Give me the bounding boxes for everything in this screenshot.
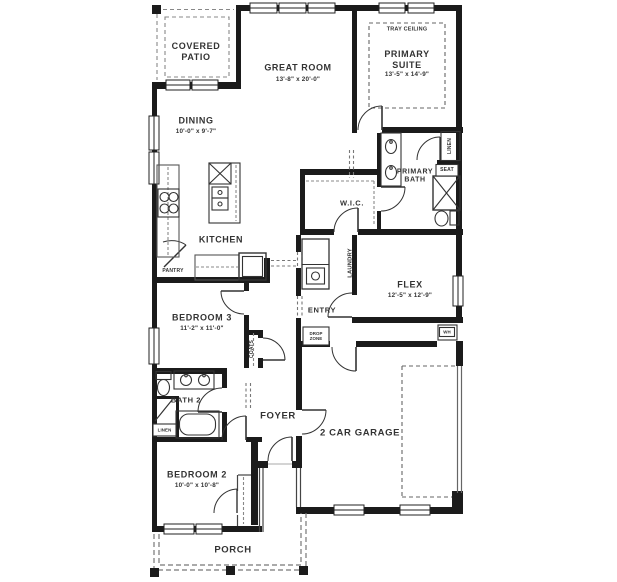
bathtub-fixture [176, 411, 219, 438]
window-icon [192, 80, 218, 90]
bedroom2-closet-door [214, 489, 237, 513]
room-label-dining: DINING [178, 116, 213, 127]
window-icon [149, 116, 159, 150]
window-icon [400, 505, 430, 515]
floorplan-canvas: COVERED PATIO GREAT ROOM 13'-8" x 20'-0"… [0, 0, 617, 582]
laundry-label: LAUNDRY [348, 248, 355, 278]
room-label-primary-bath: PRIMARY BATH [397, 169, 433, 186]
window-icon [164, 524, 194, 534]
room-dims-bedroom-3: 11'-2" x 11'-0" [180, 325, 223, 333]
entry-garage-door [332, 347, 356, 371]
room-dims-flex: 12'-5" x 12'-9" [388, 292, 432, 300]
linen-primary-label: LINEN [447, 138, 453, 154]
window-icon [250, 3, 277, 13]
room-dims-primary-suite: 13'-5" x 14'-9" [385, 71, 429, 79]
room-label-flex: FLEX [397, 280, 422, 291]
linen-hall-door [155, 400, 172, 421]
room-label-porch: PORCH [214, 544, 251, 555]
window-icon [166, 80, 190, 90]
room-dims-bedroom-2: 10'-0" x 10'-8" [175, 482, 219, 490]
window-icon [149, 328, 159, 364]
room-label-bath-2: BATH 2 [171, 396, 201, 405]
coats-label: COATS [249, 340, 255, 358]
water-heater-label: WH [443, 329, 451, 334]
room-dims-dining: 10'-0" x 9'-7" [176, 128, 216, 136]
pantry-label: PANTRY [162, 268, 183, 274]
room-label-wic: W.I.C. [340, 199, 364, 208]
seat-label: SEAT [440, 167, 454, 173]
window-icon [453, 276, 463, 306]
front-door [268, 437, 292, 461]
bath2-door [198, 388, 222, 412]
tray-ceiling-label: TRAY CEILING [387, 27, 428, 34]
room-label-garage: 2 CAR GARAGE [320, 427, 400, 438]
window-icon [408, 3, 434, 13]
kitchen-island-fixture [209, 163, 240, 223]
window-icon [308, 3, 335, 13]
room-label-entry: ENTRY [308, 306, 336, 315]
window-icon [196, 524, 222, 534]
linen-hall-label: LINEN [158, 427, 172, 432]
washer-dryer-fixture [302, 239, 329, 289]
window-icon [279, 3, 306, 13]
window-icon [334, 505, 364, 515]
drop-zone-label: DROP ZONE [309, 331, 322, 341]
room-label-foyer: FOYER [260, 410, 296, 421]
toilet-fixture [435, 211, 459, 226]
room-label-primary-suite: PRIMARY SUITE [384, 49, 429, 71]
room-label-great-room: GREAT ROOM [264, 63, 331, 74]
primary-suite-door [358, 106, 382, 130]
room-label-bedroom-2: BEDROOM 2 [167, 470, 227, 481]
room-label-bedroom-3: BEDROOM 3 [172, 313, 232, 324]
wic-door [334, 208, 358, 232]
primary-bath-door [381, 187, 405, 211]
pantry-door [163, 241, 186, 267]
toilet-fixture [156, 372, 171, 396]
counter-fixture [195, 253, 266, 280]
coats-door [263, 338, 285, 360]
room-label-covered-patio: COVERED PATIO [172, 41, 221, 63]
room-label-kitchen: KITCHEN [199, 235, 243, 246]
floorplan-linework [0, 0, 617, 582]
window-icon [379, 3, 405, 13]
room-dims-great-room: 13'-8" x 20'-0" [276, 76, 320, 84]
porch-posts [150, 566, 308, 577]
bedroom3-door [221, 291, 244, 314]
linen-primary-door [417, 137, 440, 160]
